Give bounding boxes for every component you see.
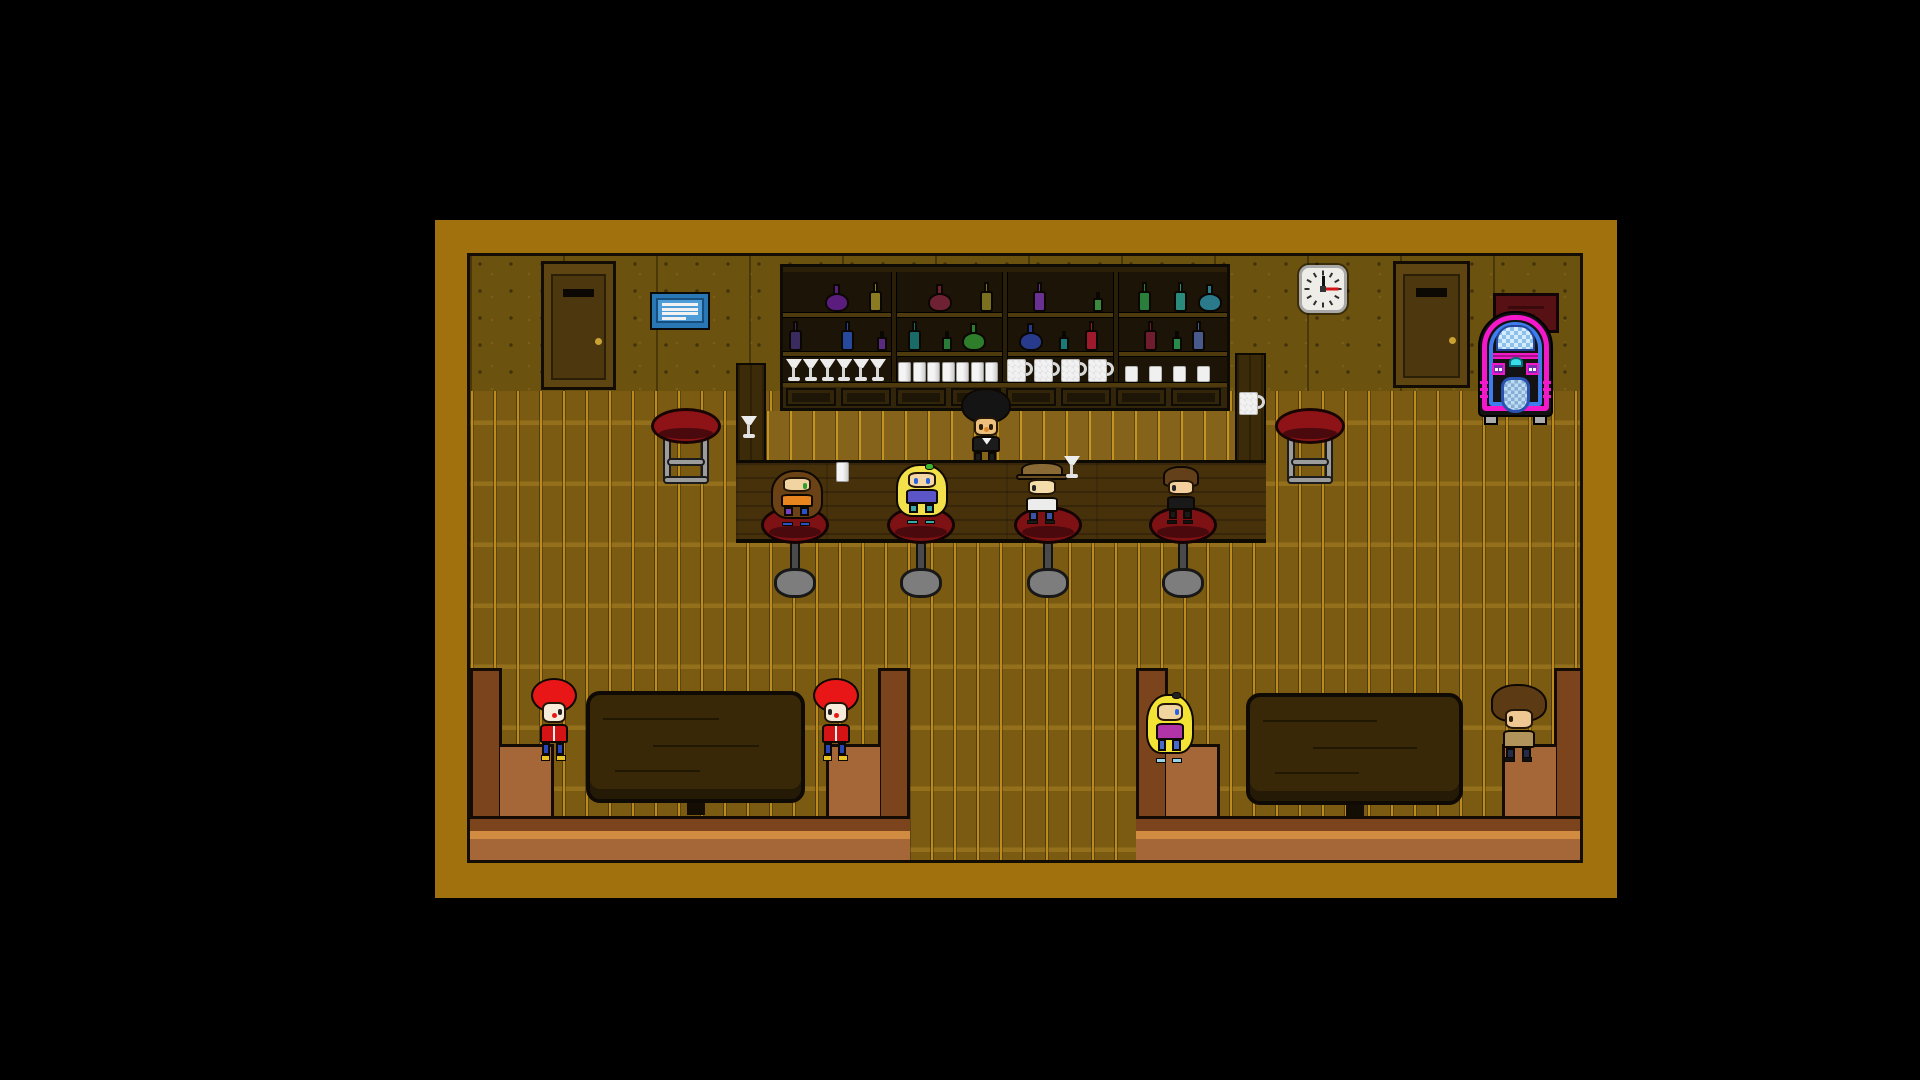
booth-kid-red-right[interactable]: [818, 681, 854, 761]
customer-blonde-leg: [909, 504, 918, 514]
booth-brown-shoe: [1522, 757, 1533, 762]
tumbler-glass-icon: [956, 362, 969, 382]
customer-blonde-shoe: [925, 520, 936, 524]
booth-blonde-leg: [1158, 739, 1166, 751]
cabinet-door-panel: [1012, 393, 1050, 402]
jukebox-button-box[interactable]: [1526, 363, 1539, 375]
table-grain: [603, 718, 719, 720]
cabinet-door-panel: [847, 393, 885, 402]
door-right[interactable]: [1393, 261, 1470, 388]
booth-brown-body: [1503, 730, 1535, 748]
booth-kid-red-left-body: [540, 724, 567, 743]
clock-tick: [1313, 300, 1317, 305]
cabinet-door[interactable]: [786, 388, 836, 406]
customer-blonde-accessory: [925, 463, 934, 470]
customer-dark-leg: [1183, 510, 1191, 519]
wall-clock: [1299, 265, 1347, 313]
jukebox-dome: [1509, 357, 1523, 367]
mug-glass-icon: [1239, 391, 1266, 416]
door-right-slot: [1416, 288, 1447, 296]
customer-brunette-eye: [803, 483, 807, 489]
booth-blonde-eye: [1175, 709, 1179, 715]
customer-blonde-eye: [914, 478, 918, 484]
stool-leg: [667, 458, 705, 466]
menu-board[interactable]: [650, 292, 710, 330]
booth-brown[interactable]: [1498, 686, 1540, 762]
game-viewport: [435, 220, 1617, 898]
customer-dark-leg: [1169, 510, 1177, 519]
clock-tick: [1306, 295, 1311, 299]
martini-glass-icon: [741, 416, 757, 439]
booth-kid-red-left-face: [542, 702, 566, 723]
table-grain: [653, 745, 759, 747]
bartender-eye: [989, 424, 993, 430]
martini-glass-icon: [820, 359, 836, 382]
booth-right-bench-bottom[interactable]: [1136, 816, 1583, 863]
cabinet-door-panel: [1067, 393, 1105, 402]
booth-blonde-leg: [1172, 739, 1180, 751]
cabinet-door[interactable]: [1006, 388, 1056, 406]
cabinet-door-panel: [902, 393, 940, 402]
mug-glass-icon: [1007, 358, 1034, 383]
customer-dark-body: [1167, 496, 1196, 510]
booth-blonde-shoe: [1156, 758, 1166, 763]
customer-brunette-shoe: [800, 522, 811, 526]
booth-kid-red-right-eye: [828, 709, 832, 715]
cabinet-door[interactable]: [896, 388, 946, 406]
booth-blonde-shoe: [1172, 758, 1182, 763]
tumbler-glass-icon: [942, 362, 955, 382]
jukebox-button[interactable]: [1495, 368, 1498, 371]
cup-glass-icon: [1125, 366, 1138, 382]
customer-blonde-shoe: [907, 520, 918, 524]
booth-kid-red-right-face: [824, 702, 848, 723]
stool-leg: [1291, 458, 1329, 466]
cup-glass-icon: [1173, 366, 1186, 382]
clock-tick: [1322, 271, 1324, 276]
booth-kid-red-left-leg: [542, 743, 550, 756]
cup-glass-icon: [1197, 366, 1210, 382]
jukebox-side-stripes: [1543, 381, 1551, 401]
clock-tick: [1334, 279, 1339, 283]
jukebox-grille: [1501, 377, 1530, 413]
customer-hat-shoe: [1027, 520, 1038, 524]
screen: [0, 0, 1920, 1080]
bartender-nose: [984, 427, 989, 432]
clock-tick: [1313, 272, 1317, 277]
customer-brunette-body: [781, 494, 813, 508]
booth-kid-red-right-nose: [834, 713, 839, 718]
booth-kid-red-left-eye: [558, 709, 562, 715]
customer-hat-eye: [1032, 485, 1036, 491]
table-grain: [1263, 720, 1378, 722]
tumbler-glass-icon: [898, 362, 911, 382]
cabinet-door-panel: [1177, 393, 1215, 402]
bartender-face: [974, 417, 998, 435]
mug-glass-icon: [1034, 358, 1061, 383]
martini-glass-icon: [803, 359, 819, 382]
clock-tick: [1305, 288, 1310, 290]
jukebox-side-stripes: [1480, 381, 1488, 401]
customer-dark-eye: [1172, 485, 1176, 491]
table-grain: [1275, 772, 1359, 774]
cabinet-door[interactable]: [1171, 388, 1221, 406]
clock-tick: [1329, 300, 1333, 305]
booth-left-bench-bottom[interactable]: [470, 816, 910, 863]
jukebox-button[interactable]: [1533, 368, 1536, 371]
jukebox-screen: [1496, 325, 1535, 351]
side-stool-right[interactable]: [1275, 408, 1345, 496]
customer-hat-shoe: [1045, 520, 1056, 524]
customer-brunette-face: [783, 477, 812, 492]
door-left-slot: [563, 289, 593, 298]
cabinet-door-panel: [1122, 393, 1160, 402]
bartender-body: [972, 436, 999, 453]
cup-glass-icon: [1149, 366, 1162, 382]
customer-blonde-body: [906, 489, 938, 504]
martini-glass-icon: [1064, 456, 1080, 479]
stool-base: [1027, 568, 1069, 598]
tumbler-glass-icon: [985, 362, 998, 382]
booth-kid-red-right-leg: [824, 743, 832, 756]
stool-seat: [1275, 408, 1345, 444]
back-bar-shelf: [780, 264, 1230, 411]
booth-left-table[interactable]: [586, 691, 805, 803]
booth-kid-red-left-nose: [552, 713, 557, 718]
booth-kid-red-right-leg: [838, 743, 846, 756]
booth-kid-red-left-leg: [556, 743, 564, 756]
booth-kid-red-left-shoe: [556, 755, 565, 761]
booth-kid-red-left[interactable]: [536, 681, 572, 761]
door-right-knob: [1449, 337, 1456, 344]
customer-blonde[interactable]: [901, 462, 943, 524]
menu-board-line: [662, 308, 697, 311]
menu-board-line: [662, 303, 697, 306]
customer-hat-face: [1028, 479, 1057, 495]
booth-brown-shoe: [1504, 757, 1515, 762]
stool-leg: [663, 476, 709, 484]
customer-blonde-face: [908, 472, 937, 488]
shelf-divider: [891, 272, 897, 382]
customer-brunette[interactable]: [776, 468, 818, 526]
customer-blonde-leg: [925, 504, 934, 514]
jukebox-button-box[interactable]: [1492, 363, 1505, 375]
bartender-eye: [979, 424, 983, 430]
customer-brunette-leg: [800, 507, 809, 516]
stool-base: [774, 568, 816, 598]
jukebox-button[interactable]: [1529, 368, 1532, 371]
door-left-knob: [595, 338, 602, 345]
cabinet-door[interactable]: [841, 388, 891, 406]
menu-board-line: [662, 317, 686, 320]
door-left[interactable]: [541, 261, 616, 390]
jukebox-body: [1478, 311, 1553, 417]
martini-glass-icon: [786, 359, 802, 382]
customer-blonde-eye: [926, 478, 930, 484]
booth-kid-red-right-shoe: [838, 755, 847, 761]
tumbler-glass-icon: [927, 362, 940, 382]
booth-kid-red-left-shoe: [541, 755, 550, 761]
booth-left-table-foot: [687, 803, 705, 815]
customer-dark-shoe: [1183, 520, 1193, 524]
customer-hat[interactable]: [1021, 462, 1063, 524]
clock-tick: [1306, 279, 1311, 283]
menu-board-line: [662, 312, 697, 315]
jukebox-button[interactable]: [1499, 368, 1502, 371]
jukebox[interactable]: [1478, 303, 1553, 425]
martini-glass-icon: [870, 359, 886, 382]
clock-tick: [1322, 303, 1324, 308]
booth-blonde-face: [1157, 703, 1183, 722]
customer-dark-shoe: [1167, 520, 1177, 524]
customer-brunette-leg: [784, 507, 793, 516]
tumbler-glass-icon: [913, 362, 926, 382]
tumbler-glass-icon: [836, 462, 849, 482]
stool-base: [1162, 568, 1204, 598]
clock-tick: [1329, 272, 1333, 277]
clock-tick: [1334, 295, 1339, 299]
side-stool-left[interactable]: [651, 408, 721, 496]
stool-base: [900, 568, 942, 598]
tumbler-glass-icon: [971, 362, 984, 382]
booth-right-table[interactable]: [1246, 693, 1463, 805]
stool-leg: [1287, 476, 1333, 484]
table-grain: [615, 770, 699, 772]
cabinet-door[interactable]: [1061, 388, 1111, 406]
customer-hat-body: [1026, 497, 1058, 512]
cabinet-door-panel: [792, 393, 830, 402]
cabinet-door[interactable]: [1116, 388, 1166, 406]
mug-glass-icon: [1088, 358, 1115, 383]
booth-kid-red-right-body: [822, 724, 849, 743]
booth-blonde[interactable]: [1151, 691, 1189, 763]
menu-board-panel: [656, 298, 703, 323]
customer-dark[interactable]: [1162, 466, 1200, 524]
martini-glass-icon: [836, 359, 852, 382]
martini-glass-icon: [853, 359, 869, 382]
booth-kid-red-right-shoe: [823, 755, 832, 761]
tavern-room[interactable]: [467, 253, 1583, 863]
table-grain: [1313, 747, 1418, 749]
clock-center: [1320, 286, 1326, 292]
booth-brown-eye: [1509, 716, 1513, 722]
customer-brunette-shoe: [782, 522, 793, 526]
booth-right-table-foot: [1346, 805, 1364, 817]
customer-dark-face: [1168, 480, 1194, 495]
bartender[interactable]: [968, 395, 1004, 465]
booth-blonde-body: [1156, 723, 1185, 740]
booth-brown-face: [1505, 709, 1534, 729]
mug-glass-icon: [1061, 358, 1088, 383]
stool-seat: [651, 408, 721, 444]
